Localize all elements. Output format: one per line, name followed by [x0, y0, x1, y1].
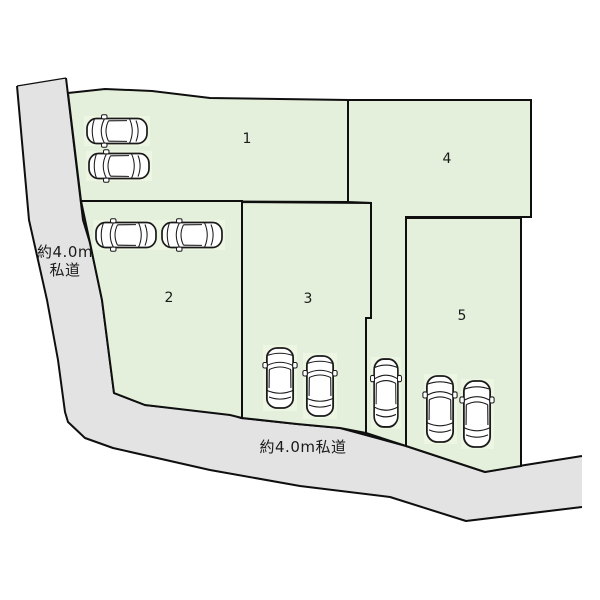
- parcel-2-number: 2: [165, 290, 174, 306]
- car-icon: [89, 150, 149, 183]
- parcel-3-number: 3: [304, 291, 313, 307]
- car-icon: [96, 219, 156, 252]
- left-road-label-line2: 私道: [49, 261, 80, 279]
- site-plan-canvas: 1 2 3 4 5 約4.0m 私道 約4.0m私道: [0, 0, 600, 600]
- car-icon: [371, 359, 402, 427]
- bottom-road-label: 約4.0m私道: [260, 438, 347, 456]
- car-icon: [460, 381, 494, 447]
- car-icon: [162, 219, 222, 252]
- car-icon: [423, 376, 457, 442]
- car-icon: [303, 356, 337, 416]
- site-plan-diagram: 1 2 3 4 5 約4.0m 私道 約4.0m私道: [0, 0, 600, 600]
- car-icon: [263, 348, 297, 408]
- parcel-1-number: 1: [243, 131, 252, 147]
- parcel-5-number: 5: [458, 308, 467, 324]
- left-road-label-line1: 約4.0m: [37, 243, 93, 261]
- car-icon: [87, 115, 147, 148]
- parcel-4-number: 4: [443, 151, 452, 167]
